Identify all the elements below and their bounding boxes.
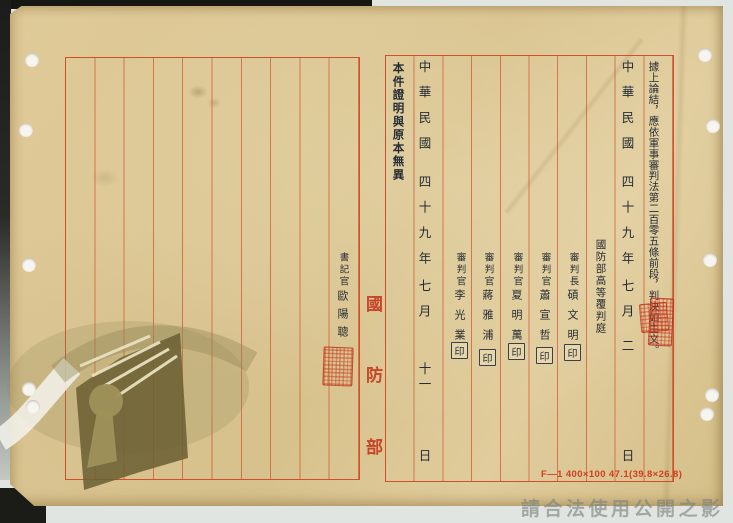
fold-label-char: 國 — [366, 290, 383, 315]
punch-hole — [698, 48, 712, 62]
fold-label-char: 部 — [366, 433, 383, 458]
seal-placeholder-box: 印 — [564, 344, 581, 361]
certification-date-year: 四十九年 — [417, 175, 430, 277]
clerk-seal-icon — [322, 346, 353, 386]
official-name: 蔣雅浦 — [481, 289, 492, 349]
judgment-date-year: 四十九年 — [620, 175, 633, 277]
certification-statement: 本件證明與原本無異 — [391, 62, 403, 182]
punch-hole — [700, 407, 714, 421]
punch-hole — [19, 123, 33, 137]
judgment-date-day-suffix: 日 — [620, 449, 633, 462]
scanned-judgment-document: 據上論結，應依軍事審判法第二百零五條前段，判決如主文。 中華民國 四十九年 七月… — [0, 0, 733, 523]
official-role: 審判官 — [511, 252, 521, 288]
punch-hole — [703, 253, 717, 267]
clerk-role: 書記官 — [337, 252, 347, 288]
court-name: 國防部高等覆判庭 — [594, 239, 605, 334]
official-role: 審判官 — [539, 252, 549, 288]
official-role: 審判官 — [454, 252, 464, 288]
seal-placeholder-box: 印 — [536, 347, 553, 364]
punch-hole — [706, 119, 720, 133]
form-code: F—1 400×100 47.1(39.8×26.8) — [541, 469, 682, 480]
official-role: 審判長 — [567, 252, 577, 288]
official-name: 碩文明 — [566, 289, 577, 349]
seal-placeholder-box: 印 — [479, 349, 496, 366]
punch-hole — [26, 400, 40, 414]
judgment-seal-icon — [648, 297, 674, 346]
punch-hole — [25, 53, 39, 67]
archives-watermark-emblem — [0, 300, 280, 490]
seal-placeholder-box: 印 — [508, 343, 525, 360]
punch-hole — [705, 388, 719, 402]
punch-hole — [22, 382, 36, 396]
judgment-date-month: 七月 — [620, 279, 633, 330]
official-name: 夏明萬 — [510, 289, 521, 349]
clerk-name: 歐陽聰 — [336, 290, 347, 344]
seal-placeholder-box: 印 — [451, 342, 468, 359]
certification-date-day-suffix: 日 — [417, 449, 430, 462]
certification-date-day: 十一 — [417, 362, 430, 393]
judgment-date-era: 中華民國 — [620, 60, 633, 162]
official-name: 李光業 — [453, 289, 464, 349]
punch-hole — [22, 258, 36, 272]
fold-label-char: 防 — [366, 361, 383, 386]
judgment-date-day: 二 — [620, 339, 633, 355]
usage-watermark-text: 請合法使用公開之影像 — [521, 494, 733, 523]
certification-date-month: 七月 — [417, 279, 430, 330]
certification-date-era: 中華民國 — [417, 60, 430, 162]
official-role: 審判官 — [482, 252, 492, 288]
official-name: 蕭宣哲 — [538, 289, 549, 349]
